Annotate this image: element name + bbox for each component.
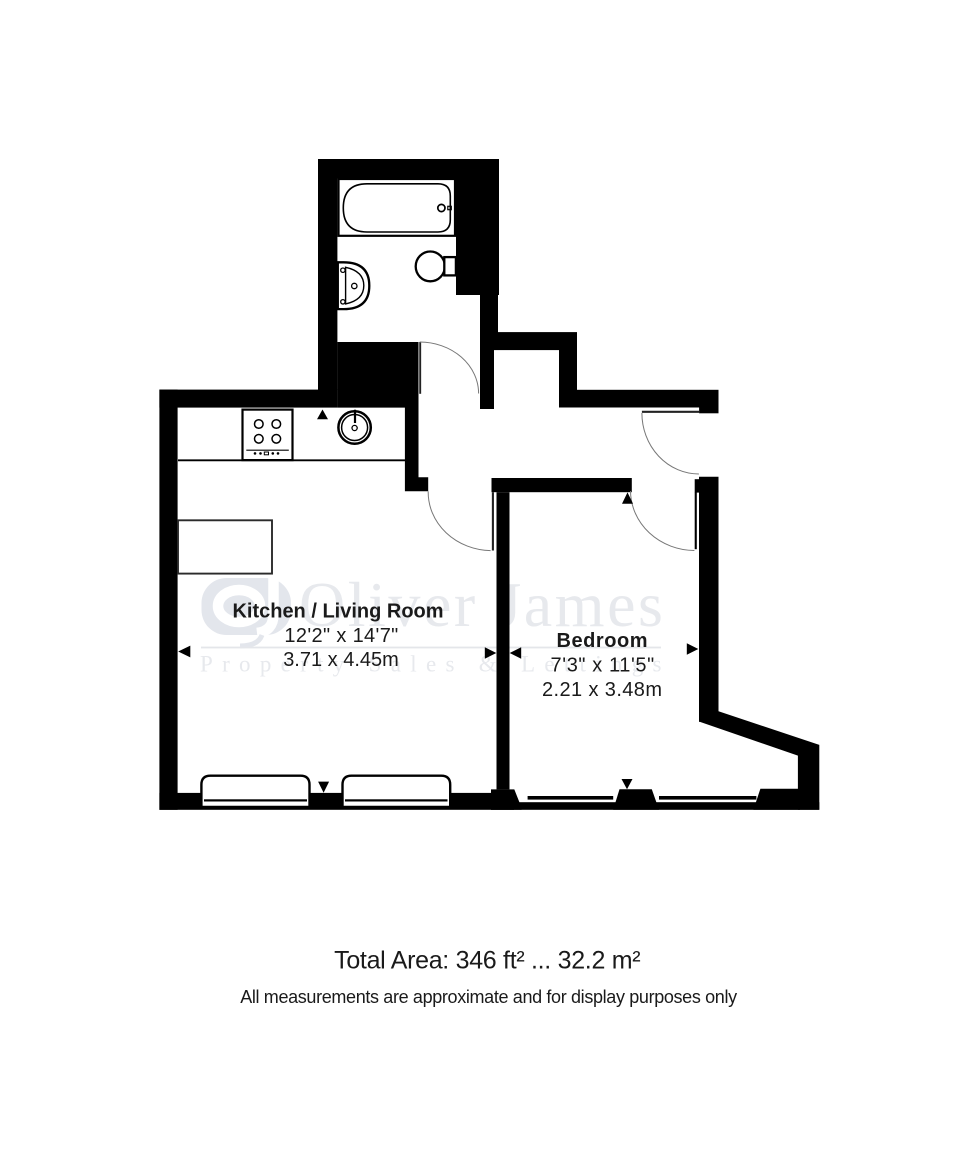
- svg-text:7'3" x 11'5": 7'3" x 11'5": [551, 654, 655, 676]
- svg-text:All measurements are approxima: All measurements are approximate and for…: [240, 987, 737, 1007]
- svg-text:3.71 x 4.45m: 3.71 x 4.45m: [283, 649, 399, 671]
- svg-text:2.21 x 3.48m: 2.21 x 3.48m: [542, 679, 662, 701]
- svg-text:12'2" x 14'7": 12'2" x 14'7": [284, 625, 398, 647]
- svg-text:Bedroom: Bedroom: [556, 630, 648, 652]
- svg-text:Kitchen / Living Room: Kitchen / Living Room: [232, 600, 443, 622]
- svg-text:Total Area: 346 ft² ... 32.2 m: Total Area: 346 ft² ... 32.2 m²: [334, 947, 640, 975]
